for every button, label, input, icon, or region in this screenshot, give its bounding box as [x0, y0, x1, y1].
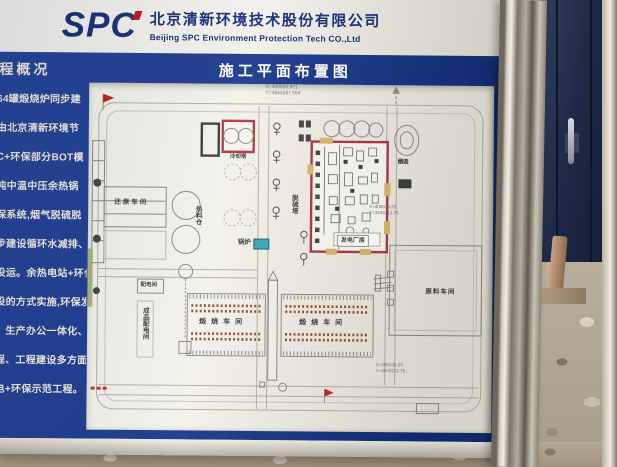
- north-arrow-icon: [393, 87, 399, 104]
- construction-site-photo: SPC 北京清新环境技术股份有限公司 Beijing SPC Environme…: [0, 0, 617, 467]
- hot-material-silo-label: 热料仓: [194, 206, 201, 226]
- flag-marker-bottom: [324, 389, 333, 403]
- overview-line: C+环保部分BOT模: [0, 152, 88, 165]
- chimney-shape: [395, 125, 419, 155]
- conveyor-gallery-shape: [260, 271, 288, 391]
- cooling-tower-label: 冷却塔: [222, 154, 255, 160]
- container-door: [538, 0, 610, 290]
- overview-title: 程概况: [0, 59, 88, 80]
- overview-line: 、生产办公一体化、生产: [0, 326, 86, 339]
- overview-line: 投运。余热电站+环保: [0, 268, 87, 281]
- overview-line: 吨中温中压余热锅: [0, 181, 87, 194]
- overview-line: 电+环保示范工程。: [0, 384, 86, 397]
- tank-outline-shape: [202, 124, 219, 156]
- overview-line: 保系统,烟气脱硫脱: [0, 210, 87, 223]
- site-plan-drawing: [86, 83, 494, 434]
- raw-material-workshop-label: 原料车间: [425, 289, 455, 296]
- boiler-label: 锅炉: [238, 239, 251, 246]
- cooling-tower-shape: [223, 121, 254, 152]
- plan-title: 施工平面布置图: [135, 59, 435, 83]
- overview-line: 设的方式实施,环保发: [0, 297, 86, 310]
- spc-logo: SPC: [62, 7, 137, 43]
- spc-logo-text: SPC: [62, 5, 137, 45]
- site-plan: X=408900.971 Y=3943287.564 冷却塔 锅炉 脱硫塔 热料…: [86, 83, 494, 434]
- company-name-en: Beijing SPC Environment Protection Tech …: [150, 32, 381, 44]
- boiler-shape: [254, 239, 269, 249]
- steel-frame-post-right: [602, 0, 617, 467]
- project-overview-panel: 程概况 64罐煅烧炉同步建 由北京清新环境节 C+环保部分BOT模 吨中温中压余…: [0, 54, 89, 429]
- billboard-body: 程概况 64罐煅烧炉同步建 由北京清新环境节 C+环保部分BOT模 吨中温中压余…: [0, 52, 508, 442]
- overview-line: 由北京清新环境节: [0, 123, 88, 136]
- reduction-workshop-label: 还原车间: [114, 199, 148, 206]
- overview-line: 步建设循环水减排、脱: [0, 239, 87, 252]
- coord-label-right-y: Y=3943212.75: [369, 211, 398, 216]
- coord-label-top-y: Y=3943287.564: [265, 91, 300, 97]
- future-cooling-towers-shape: [224, 164, 257, 226]
- company-name-block: 北京清新环境技术股份有限公司 Beijing SPC Environment P…: [150, 8, 381, 44]
- product-power-room-label: 成品配电间: [141, 307, 148, 340]
- power-house-label: 发电厂房: [337, 235, 369, 247]
- calcining-workshop-left-label: 煅烧车间: [199, 319, 247, 327]
- container-panel-line: [590, 0, 592, 290]
- overview-line: 64罐煅烧炉同步建: [0, 94, 88, 107]
- overview-line: 程、工程建设多方面树立: [0, 355, 86, 368]
- company-name-cn: 北京清新环境技术股份有限公司: [150, 8, 381, 31]
- steel-frame-post: [491, 0, 547, 467]
- door-handle: [568, 118, 574, 164]
- desulfurization-tower-label: 脱硫塔: [290, 194, 297, 214]
- coord-label-bottom-y: Y=3943212.75: [376, 369, 405, 374]
- billboard-header: SPC 北京清新环境技术股份有限公司 Beijing SPC Environme…: [0, 0, 508, 56]
- flag-marker-top: [103, 94, 114, 110]
- chimney-label: 烟囱: [398, 159, 409, 165]
- calcining-workshop-right-label: 煅烧车间: [299, 319, 347, 327]
- reduction-workshop-shape: [104, 187, 167, 260]
- distribution-room-label: 配电间: [140, 282, 157, 288]
- brick-debris: [540, 288, 586, 304]
- billboard: SPC 北京清新环境技术股份有限公司 Beijing SPC Environme…: [0, 0, 508, 458]
